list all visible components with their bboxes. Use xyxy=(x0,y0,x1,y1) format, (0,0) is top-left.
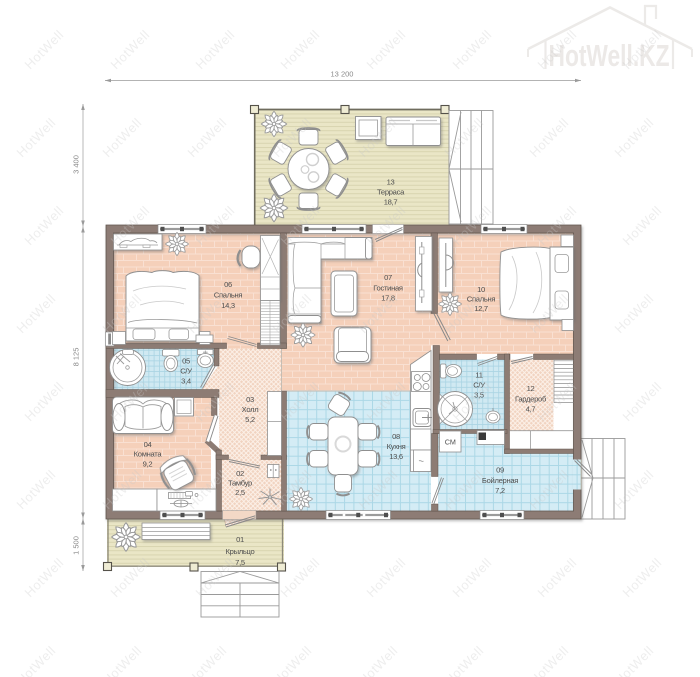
svg-text:10: 10 xyxy=(477,285,485,294)
svg-text:13: 13 xyxy=(387,178,395,187)
svg-text:13 200: 13 200 xyxy=(331,70,354,79)
svg-text:05: 05 xyxy=(182,357,190,366)
svg-text:09: 09 xyxy=(496,466,504,475)
svg-text:Гардероб: Гардероб xyxy=(515,395,547,404)
svg-text:3 400: 3 400 xyxy=(72,155,81,174)
svg-text:2,5: 2,5 xyxy=(235,488,245,497)
svg-text:11: 11 xyxy=(475,371,482,380)
svg-text:Бойлерная: Бойлерная xyxy=(482,476,518,485)
svg-text:Комната: Комната xyxy=(134,450,163,459)
svg-text:8 125: 8 125 xyxy=(72,348,81,367)
svg-text:Холл: Холл xyxy=(242,405,259,414)
svg-text:01: 01 xyxy=(236,535,244,544)
svg-text:Крыльцо: Крыльцо xyxy=(226,547,255,556)
svg-text:Гостиная: Гостиная xyxy=(373,284,403,293)
svg-text:С/У: С/У xyxy=(180,367,192,376)
svg-text:7,2: 7,2 xyxy=(495,486,505,495)
svg-text:08: 08 xyxy=(392,432,400,441)
svg-text:06: 06 xyxy=(224,280,232,289)
svg-text:03: 03 xyxy=(246,395,254,404)
svg-text:5,2: 5,2 xyxy=(245,415,255,424)
svg-text:04: 04 xyxy=(144,440,152,449)
svg-text:07: 07 xyxy=(384,273,392,282)
svg-text:4,7: 4,7 xyxy=(526,405,536,414)
svg-text:02: 02 xyxy=(236,469,244,478)
svg-text:12: 12 xyxy=(527,384,535,393)
svg-text:Терраса: Терраса xyxy=(377,188,405,197)
svg-text:9,2: 9,2 xyxy=(143,460,153,469)
svg-text:СМ: СМ xyxy=(445,438,456,447)
svg-text:Тамбур: Тамбур xyxy=(228,479,252,488)
svg-text:1 500: 1 500 xyxy=(72,536,81,555)
svg-text:Кухня: Кухня xyxy=(387,442,406,451)
svg-text:13,6: 13,6 xyxy=(389,452,403,461)
svg-text:3,4: 3,4 xyxy=(181,377,191,386)
